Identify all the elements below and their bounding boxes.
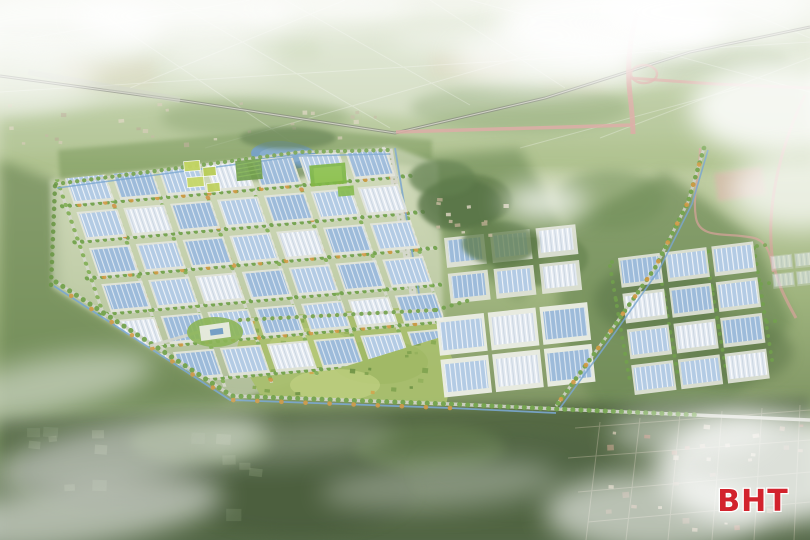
cloud: [453, 28, 643, 88]
scatter-item: [371, 391, 375, 394]
factory-roof: [269, 343, 314, 370]
scatter-item: [415, 352, 418, 355]
factory-roof: [138, 243, 183, 270]
factory-roof: [222, 347, 267, 374]
scene-layers: [0, 0, 810, 540]
scatter-item: [365, 372, 369, 375]
factory-roof: [291, 266, 336, 293]
scatter-item: [436, 202, 441, 205]
factory-roof: [667, 250, 708, 277]
scatter-item: [481, 222, 487, 226]
factory-roof: [718, 280, 759, 307]
factory-roof: [372, 222, 417, 249]
scatter-item: [431, 340, 436, 345]
scatter-item: [350, 369, 356, 374]
scatter-item: [449, 220, 453, 223]
scatter-item: [252, 386, 256, 390]
bht-watermark-logo: BHT: [717, 484, 788, 519]
factory-roof: [338, 262, 383, 289]
factory-roof: [634, 363, 675, 390]
scatter-item: [436, 225, 440, 228]
factory-roof: [714, 245, 755, 272]
factory-roof: [173, 202, 218, 229]
factory-roof: [198, 275, 243, 302]
scatter-item: [226, 509, 241, 521]
factory-roof: [244, 270, 289, 297]
scatter-item: [607, 445, 614, 451]
factory-roof: [126, 207, 171, 234]
factory-roof: [543, 263, 578, 288]
scatter-item: [418, 379, 424, 383]
hamlet-trees: [462, 221, 538, 265]
scatter-item: [391, 387, 397, 392]
factory-roof: [91, 247, 136, 274]
scatter-item: [27, 428, 40, 437]
scatter-item: [461, 231, 465, 234]
factory-roof: [497, 268, 532, 293]
factory-roof: [385, 258, 430, 285]
sports-field-2: [338, 185, 355, 196]
factory-roof: [539, 228, 574, 253]
scatter-item: [446, 213, 451, 217]
factory-roof: [543, 307, 588, 339]
scatter-item: [410, 386, 413, 389]
scatter-item: [249, 468, 263, 477]
scatter-item: [422, 368, 428, 374]
factory-roof: [727, 352, 768, 379]
aerial-rendering: BHT: [0, 0, 810, 540]
scatter-item: [264, 389, 270, 393]
factory-roof: [680, 358, 721, 385]
factory-roof: [220, 198, 265, 225]
factory-roof: [326, 226, 371, 253]
scatter-item: [407, 351, 412, 354]
factory-roof: [360, 186, 405, 213]
cloud: [158, 42, 278, 78]
factory-roof: [232, 234, 277, 261]
factory-roof: [151, 279, 196, 306]
factory-roof: [104, 283, 149, 310]
cloud: [610, 404, 770, 460]
factory-roof: [671, 286, 712, 313]
factory-roof: [451, 273, 486, 298]
factory-roof: [722, 316, 763, 343]
factory-roof: [771, 255, 792, 269]
cloud: [503, 186, 587, 218]
scatter-item: [368, 368, 371, 371]
factory-roof: [397, 294, 442, 321]
masterplan-scene: BHT: [0, 0, 810, 540]
factory-roof: [440, 318, 485, 350]
factory-roof: [773, 273, 794, 287]
factory-roof: [496, 355, 541, 387]
factory-roof: [444, 360, 489, 392]
factory-roof: [629, 328, 670, 355]
scatter-item: [467, 205, 471, 209]
scatter-item: [437, 198, 443, 201]
factory-roof: [266, 194, 311, 221]
factory-roof: [797, 270, 810, 284]
scatter-item: [488, 234, 492, 237]
factory-roof: [795, 252, 810, 266]
scatter-item: [405, 355, 409, 358]
scatter-item: [295, 392, 300, 395]
admin-building: [207, 182, 221, 192]
factory-roof: [185, 238, 230, 265]
factory-roof: [279, 230, 324, 257]
scatter-item: [455, 223, 461, 227]
factory-roof: [79, 211, 124, 238]
factory-roof: [491, 313, 536, 345]
factory-roof: [316, 338, 361, 365]
factory-roof: [676, 322, 717, 349]
